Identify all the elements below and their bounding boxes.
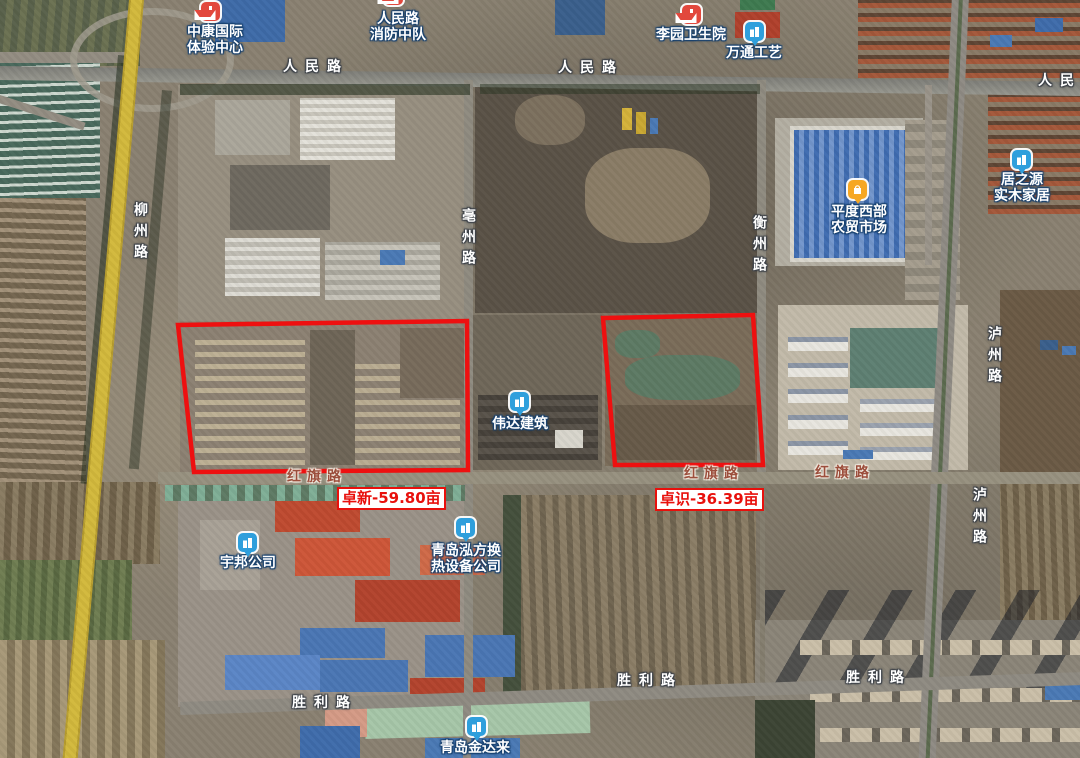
building-marker-icon[interactable] — [745, 22, 764, 41]
satellite-map[interactable]: 人民路 人民路 人民路 柳州路 亳州路 衡州路 泸州路 泸州路 红旗路 红旗路 … — [0, 0, 1080, 758]
road-label-bozhou: 亳州路 — [461, 208, 475, 271]
parcel-tag-zhuoshi: 卓识-36.39亩 — [655, 488, 764, 511]
poi-label-weida[interactable]: 伟达建筑 — [470, 416, 570, 432]
poi-label-liyuan[interactable]: 李园卫生院 — [641, 27, 741, 43]
road-label-hongqi-mid: 红旗路 — [684, 467, 744, 481]
poi-line: 居之源 — [1001, 172, 1043, 188]
parcel-zhuoxin-outline — [178, 321, 468, 472]
poi-line: 热设备公司 — [431, 559, 501, 575]
road-label-luzhou-north: 泸州路 — [987, 326, 1001, 389]
road-label-hongqi-west: 红旗路 — [287, 470, 347, 484]
parcel-tag-zhuoxin: 卓新-59.80亩 — [337, 487, 446, 510]
poi-line: 实木家居 — [994, 188, 1050, 204]
parcel-outlines-layer — [0, 0, 1080, 758]
poi-line: 人民路 — [377, 11, 419, 27]
poi-line: 中康国际 — [187, 24, 243, 40]
building-marker-icon[interactable] — [467, 717, 486, 736]
road-label-shengli-west: 胜利路 — [292, 696, 358, 710]
road-label-shengli-mid: 胜利路 — [617, 674, 683, 688]
poi-label-yubang[interactable]: 宇邦公司 — [198, 555, 298, 571]
poi-line: 消防中队 — [370, 27, 426, 43]
poi-label-jindalai[interactable]: 青岛金达来 — [425, 740, 525, 756]
poi-line: 农贸市场 — [831, 220, 887, 236]
road-label-renmin-mid: 人民路 — [558, 61, 624, 75]
poi-line: 体验中心 — [187, 40, 243, 56]
road-label-shengli-east: 胜利路 — [846, 671, 912, 685]
building-marker-icon[interactable] — [1012, 150, 1031, 169]
poi-label-hongfang[interactable]: 青岛泓方换 热设备公司 — [416, 543, 516, 575]
clinic-marker-icon[interactable] — [682, 5, 701, 24]
road-label-luzhou-south: 泸州路 — [972, 487, 986, 550]
building-marker-icon[interactable] — [510, 392, 529, 411]
road-label-renmin-east: 人民路 — [1038, 74, 1080, 88]
poi-label-juzhiyuan[interactable]: 居之源 实木家居 — [972, 172, 1072, 204]
building-marker-icon[interactable] — [456, 518, 475, 537]
road-label-liuzhou: 柳州路 — [133, 202, 147, 265]
road-label-hongqi-east: 红旗路 — [815, 466, 875, 480]
road-label-renmin-west: 人民路 — [283, 60, 349, 74]
fire-station-marker-icon[interactable] — [384, 0, 403, 5]
poi-line: 青岛泓方换 — [431, 543, 501, 559]
road-label-hengzhou: 衡州路 — [752, 215, 766, 278]
parcel-zhuoshi-outline — [603, 315, 763, 465]
poi-label-wantong[interactable]: 万通工艺 — [704, 45, 804, 61]
poi-line: 平度西部 — [831, 204, 887, 220]
market-marker-icon[interactable] — [848, 180, 867, 199]
building-marker-icon[interactable] — [238, 533, 257, 552]
hospital-marker-icon[interactable] — [201, 2, 220, 21]
poi-label-xiaofang[interactable]: 人民路 消防中队 — [348, 11, 448, 43]
poi-label-nongmao[interactable]: 平度西部 农贸市场 — [809, 204, 909, 236]
poi-label-zhongkang[interactable]: 中康国际 体验中心 — [165, 24, 265, 56]
